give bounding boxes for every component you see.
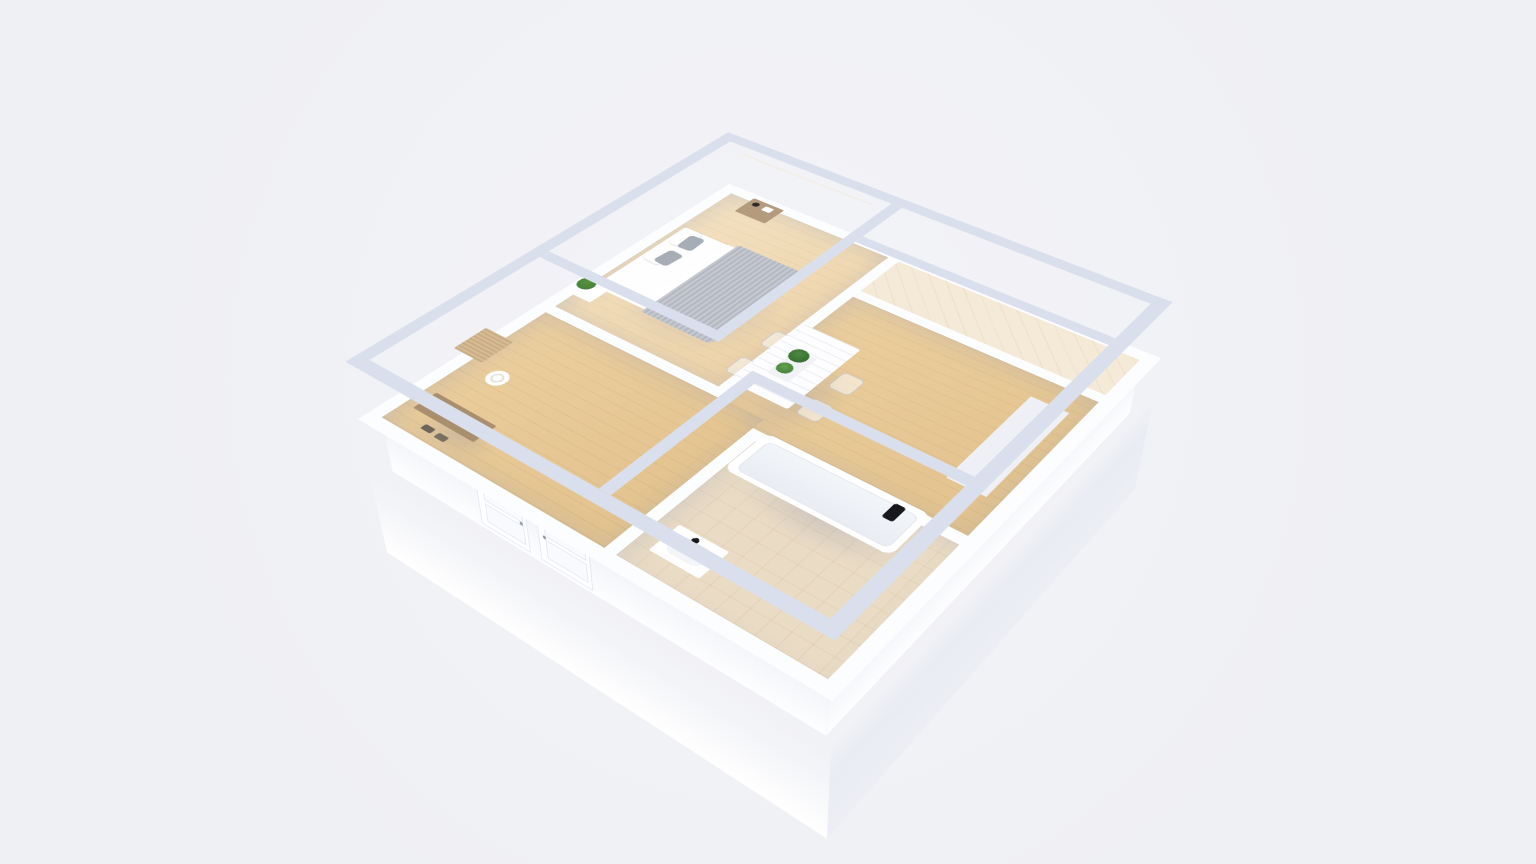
apartment-3d-scene <box>358 184 1161 701</box>
render-canvas <box>0 0 1536 864</box>
